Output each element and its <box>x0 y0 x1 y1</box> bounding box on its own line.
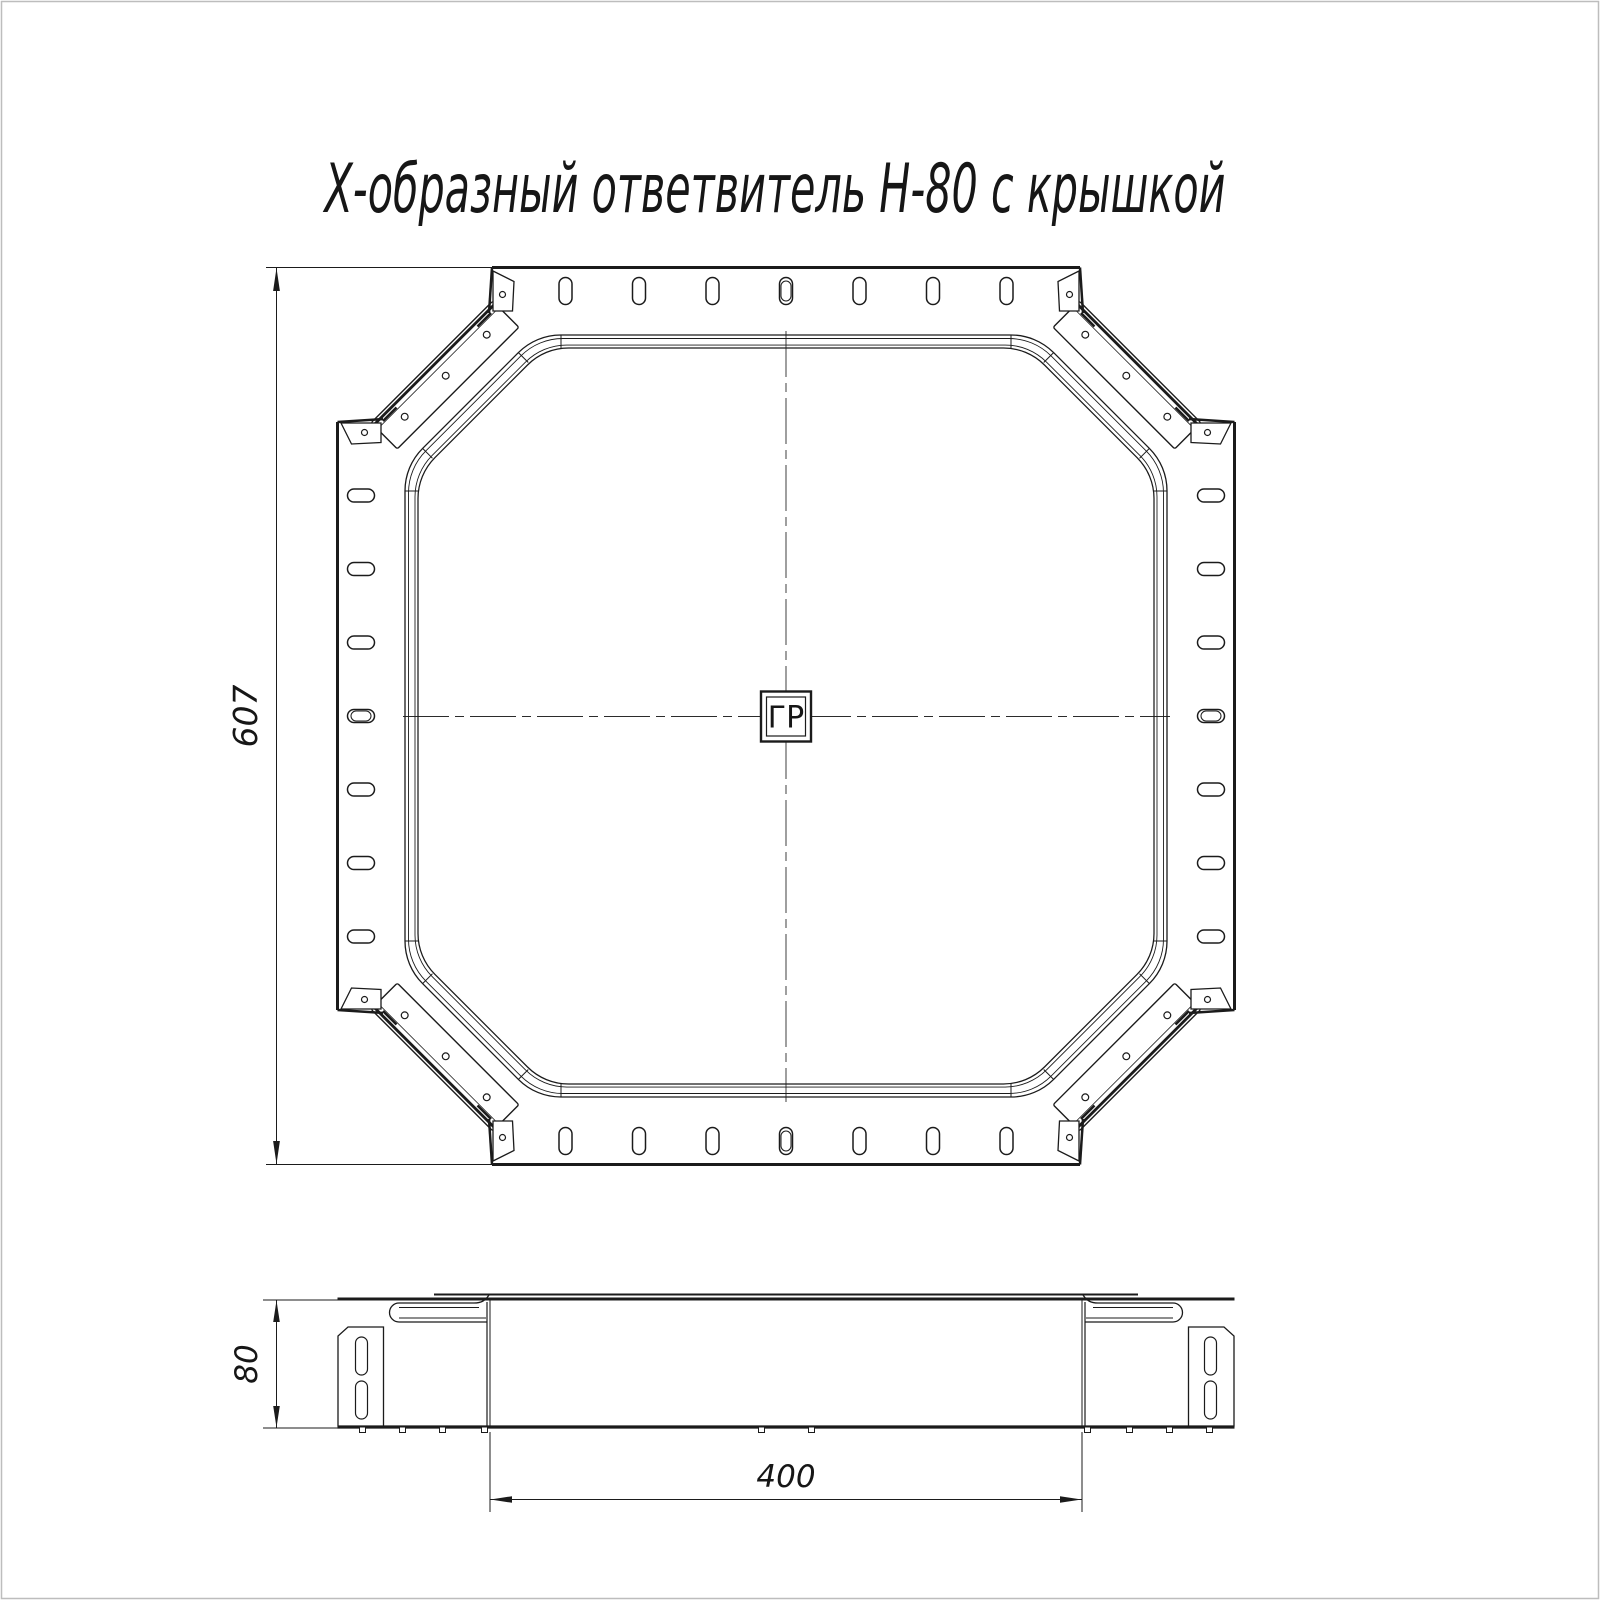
drawing-title: Х-образный ответвитель Н-80 с крышкой <box>323 150 1226 229</box>
drawing-sheet: Х-образный ответвитель Н-80 с крышкой <box>0 0 1600 1600</box>
dim-400-label: 400 <box>756 1459 815 1495</box>
dim-80-label: 80 <box>229 1344 265 1383</box>
center-foot-tab <box>809 1427 815 1433</box>
engineering-drawing: Х-образный ответвитель Н-80 с крышкой <box>0 0 1600 1600</box>
center-foot-tab <box>759 1427 765 1433</box>
dim-607-label: 607 <box>226 685 265 748</box>
center-logo-label: ГР <box>768 701 804 736</box>
center-logo: ГР <box>761 692 811 742</box>
